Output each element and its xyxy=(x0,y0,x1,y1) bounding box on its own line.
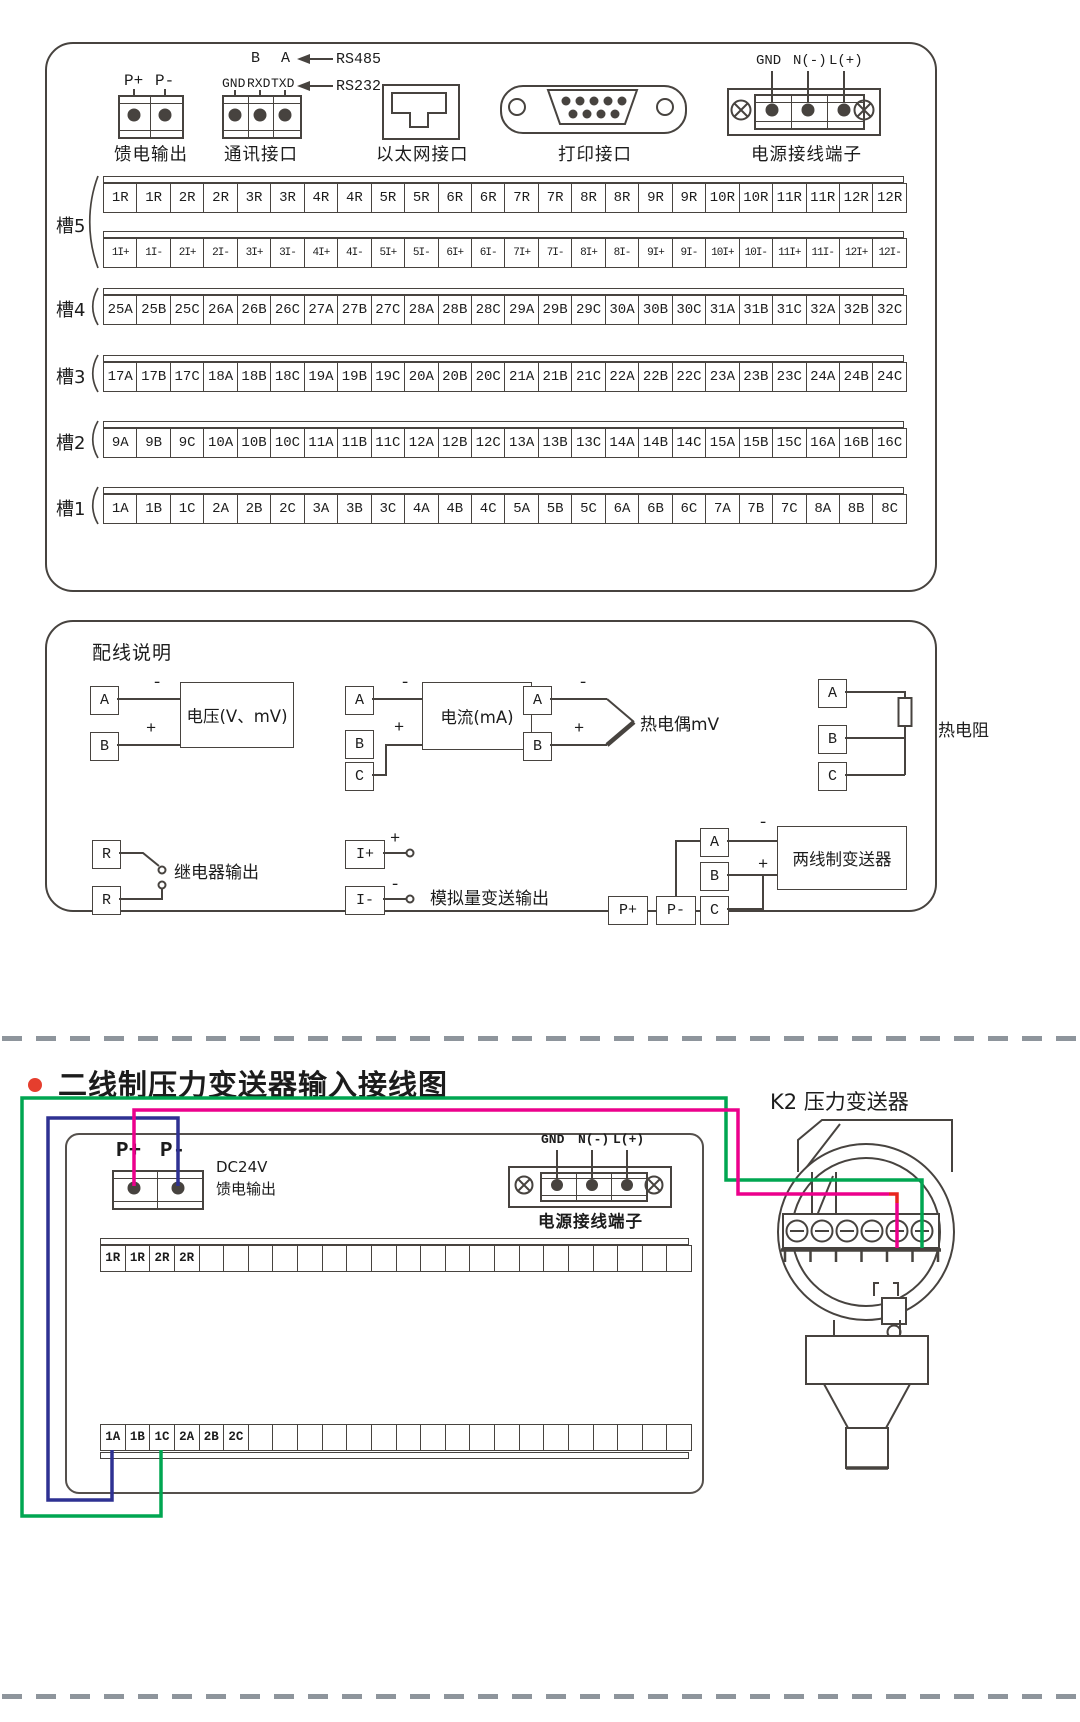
terminal-cell: 5B xyxy=(538,495,571,523)
terminal-cell: 2R xyxy=(174,1246,199,1271)
terminal-cell xyxy=(248,1425,273,1450)
printer-caption: 打印接口 xyxy=(558,141,632,166)
terminal-cell: 1B xyxy=(125,1425,150,1450)
terminal-cell: 31A xyxy=(705,296,738,324)
terminal-cell: 30C xyxy=(672,296,705,324)
slot5-row-r: 1R1R2R2R3R3R4R4R5R5R6R6R7R7R8R8R9R9R10R1… xyxy=(103,183,907,213)
terminal-cell: 21A xyxy=(504,363,537,391)
terminal-cell: 6A xyxy=(605,495,638,523)
terminal-cell xyxy=(371,1246,396,1271)
terminal-cell: 20A xyxy=(404,363,437,391)
terminal-cell: 2A xyxy=(203,495,236,523)
terminal-cell: 1B xyxy=(136,495,169,523)
terminal-cell: 3B xyxy=(337,495,370,523)
terminal-cell: 8C xyxy=(872,495,905,523)
terminal-cell: 14A xyxy=(605,429,638,457)
slot4-label: 槽4 xyxy=(56,296,85,322)
current-terminal-c: C xyxy=(345,762,374,791)
comm-terminal-block xyxy=(222,95,302,139)
terminal-cell: 11A xyxy=(304,429,337,457)
bottom-feed-pplus-label: P+ xyxy=(116,1140,141,1163)
terminal-cell: 20C xyxy=(471,363,504,391)
printer-port xyxy=(500,85,687,134)
terminal-cell: 1C xyxy=(149,1425,174,1450)
bottom-power-cells xyxy=(540,1172,648,1202)
terminal-cell: 7A xyxy=(705,495,738,523)
terminal-cell xyxy=(494,1425,519,1450)
analog-plus-sign: + xyxy=(390,830,400,849)
terminal-cell: 25B xyxy=(136,296,169,324)
terminal-cell: 11I+ xyxy=(772,239,805,267)
feed-terminal-block xyxy=(118,95,184,139)
block-divider xyxy=(611,1174,612,1200)
terminal-cell: 13C xyxy=(571,429,604,457)
wiring-diagram-page: P+ P- 馈电输出 B A GND RXD TXD RS485 RS232 通… xyxy=(0,0,1080,1722)
power-pin-l: L(+) xyxy=(829,53,863,69)
bottom-diagram-title: 二线制压力变送器输入接线图 xyxy=(58,1062,448,1104)
terminal-cell: 32B xyxy=(839,296,872,324)
voltage-terminal-a: A xyxy=(90,686,119,715)
bottom-feed-pminus-label: P- xyxy=(160,1140,185,1163)
bottom-power-gnd: GND xyxy=(541,1132,564,1147)
wire-red xyxy=(889,1194,897,1203)
terminal-cell xyxy=(445,1425,470,1450)
slot5-bar-i xyxy=(103,231,904,238)
terminal-cell: 10C xyxy=(270,429,303,457)
block-divider xyxy=(150,97,151,137)
terminal-cell: 11B xyxy=(337,429,370,457)
slot2-bar xyxy=(103,421,904,428)
terminal-cell: 6I- xyxy=(471,239,504,267)
terminal-cell: 15C xyxy=(772,429,805,457)
terminal-cell: 30B xyxy=(638,296,671,324)
terminal-cell: 18B xyxy=(237,363,270,391)
terminal-cell: 8I- xyxy=(605,239,638,267)
analog-terminal-iplus: I+ xyxy=(345,840,385,869)
block-band xyxy=(120,103,182,104)
terminal-cell: 16C xyxy=(872,429,905,457)
terminal-cell: 8A xyxy=(806,495,839,523)
terminal-cell: 19C xyxy=(371,363,404,391)
terminal-cell: 32A xyxy=(806,296,839,324)
terminal-cell xyxy=(494,1246,519,1271)
block-divider xyxy=(157,1172,158,1208)
terminal-cell: 3A xyxy=(304,495,337,523)
rs232-label: RS232 xyxy=(336,78,381,95)
slot2-row: 9A9B9C10A10B10C11A11B11C12A12B12C13A13B1… xyxy=(103,428,907,458)
terminal-cell xyxy=(420,1246,445,1271)
terminal-cell: 8R xyxy=(605,184,638,212)
bottom-strip-bottom-bar xyxy=(100,1452,689,1459)
terminal-cell: 13A xyxy=(504,429,537,457)
terminal-cell: 2R xyxy=(203,184,236,212)
terminal-cell: 8R xyxy=(571,184,604,212)
terminal-cell: 4I+ xyxy=(304,239,337,267)
terminal-cell: 19B xyxy=(337,363,370,391)
terminal-cell: 5I+ xyxy=(371,239,404,267)
terminal-cell: 31C xyxy=(772,296,805,324)
terminal-cell xyxy=(322,1425,347,1450)
terminal-cell xyxy=(617,1246,642,1271)
terminal-cell: 4R xyxy=(304,184,337,212)
transmitter-sign-p1: + xyxy=(817,1258,827,1276)
pressure-transmitter-drawing xyxy=(778,1120,954,1468)
thermocouple-minus-sign: - xyxy=(578,674,588,693)
terminal-cell: 3R xyxy=(270,184,303,212)
terminal-cell xyxy=(469,1246,494,1271)
terminal-cell: 5R xyxy=(371,184,404,212)
terminal-cell: 24C xyxy=(872,363,905,391)
thermocouple-terminal-b: B xyxy=(523,732,552,761)
comm-rs485-a-label: A xyxy=(281,50,290,67)
block-band xyxy=(114,1201,202,1202)
transmitter-sign-m2: - xyxy=(893,1258,903,1276)
terminal-cell xyxy=(543,1425,568,1450)
terminal-cell: 27B xyxy=(337,296,370,324)
terminal-cell: 26B xyxy=(237,296,270,324)
terminal-cell: 18C xyxy=(270,363,303,391)
block-divider xyxy=(576,1174,577,1200)
current-device-box: 电流(mA) xyxy=(422,682,532,750)
terminal-cell: 28C xyxy=(471,296,504,324)
terminal-cell: 10R xyxy=(739,184,772,212)
terminal-cell: 9C xyxy=(170,429,203,457)
terminal-cell: 2B xyxy=(237,495,270,523)
terminal-cell: 2R xyxy=(170,184,203,212)
slot4-row: 25A25B25C26A26B26C27A27B27C28A28B28C29A2… xyxy=(103,295,907,325)
block-divider xyxy=(248,97,249,137)
terminal-cell: 15B xyxy=(739,429,772,457)
terminal-cell: 10A xyxy=(203,429,236,457)
terminal-cell: 23B xyxy=(739,363,772,391)
terminal-cell: 7C xyxy=(772,495,805,523)
ethernet-port xyxy=(382,84,460,140)
terminal-cell: 2I- xyxy=(203,239,236,267)
terminal-cell xyxy=(223,1246,248,1271)
terminal-cell: 2C xyxy=(270,495,303,523)
bottom-feed-caption1: DC24V xyxy=(216,1158,267,1176)
terminal-cell: 28B xyxy=(438,296,471,324)
current-minus-sign: - xyxy=(400,674,410,693)
block-band xyxy=(542,1178,646,1179)
terminal-cell: 12B xyxy=(438,429,471,457)
twowire-feed-pplus: P+ xyxy=(608,896,648,925)
current-terminal-b: B xyxy=(345,730,374,759)
terminal-cell: 7B xyxy=(739,495,772,523)
terminal-cell: 11R xyxy=(806,184,839,212)
slot3-bar xyxy=(103,355,904,362)
comm-caption: 通讯接口 xyxy=(224,141,298,166)
ethernet-caption: 以太网接口 xyxy=(376,141,469,166)
terminal-cell: 2C xyxy=(223,1425,248,1450)
current-terminal-a: A xyxy=(345,686,374,715)
terminal-cell: 23C xyxy=(772,363,805,391)
terminal-cell: 21C xyxy=(571,363,604,391)
terminal-cell: 5I- xyxy=(404,239,437,267)
twowire-minus-sign: - xyxy=(758,814,768,833)
terminal-cell: 12R xyxy=(839,184,872,212)
terminal-cell xyxy=(543,1246,568,1271)
terminal-cell: 5A xyxy=(504,495,537,523)
terminal-cell: 3C xyxy=(371,495,404,523)
terminal-cell: 32C xyxy=(872,296,905,324)
terminal-cell xyxy=(346,1425,371,1450)
relay-terminal-r2: R xyxy=(92,886,121,915)
terminal-cell: 6R xyxy=(471,184,504,212)
block-band xyxy=(120,130,182,131)
terminal-cell: 22A xyxy=(605,363,638,391)
terminal-cell: 11C xyxy=(371,429,404,457)
block-divider xyxy=(273,97,274,137)
relay-label: 继电器输出 xyxy=(174,858,259,883)
terminal-cell xyxy=(593,1246,618,1271)
terminal-cell: 27C xyxy=(371,296,404,324)
terminal-cell xyxy=(272,1425,297,1450)
bracket-icon-right xyxy=(893,1283,898,1296)
voltage-minus-sign: - xyxy=(152,674,162,693)
terminal-cell: 4C xyxy=(471,495,504,523)
terminal-cell xyxy=(199,1246,224,1271)
terminal-cell: 2I+ xyxy=(170,239,203,267)
terminal-cell: 10B xyxy=(237,429,270,457)
terminal-cell: 3I+ xyxy=(237,239,270,267)
thermocouple-terminal-a: A xyxy=(523,686,552,715)
terminal-cell: 2A xyxy=(174,1425,199,1450)
terminal-cell: 10I- xyxy=(739,239,772,267)
terminal-cell: 10I+ xyxy=(705,239,738,267)
terminal-cell: 5R xyxy=(404,184,437,212)
terminal-cell: 14B xyxy=(638,429,671,457)
analog-minus-sign: - xyxy=(390,876,400,895)
slot5-row-i: 1I+1I-2I+2I-3I+3I-4I+4I-5I+5I-6I+6I-7I+7… xyxy=(103,238,907,268)
voltage-plus-sign: + xyxy=(146,720,156,739)
terminal-cell: 1R xyxy=(136,184,169,212)
terminal-cell xyxy=(617,1425,642,1450)
twowire-feed-pminus: P- xyxy=(656,896,696,925)
terminal-cell xyxy=(519,1425,544,1450)
terminal-cell xyxy=(568,1246,593,1271)
section-divider-bottom xyxy=(2,1694,1078,1699)
comm-pin-rxd: RXD xyxy=(247,76,270,91)
terminal-cell: 6B xyxy=(638,495,671,523)
terminal-cell xyxy=(445,1246,470,1271)
block-band xyxy=(756,102,863,103)
terminal-cell: 17C xyxy=(170,363,203,391)
analog-terminal-iminus: I- xyxy=(345,886,385,915)
terminal-cell: 6I+ xyxy=(438,239,471,267)
power-pin-n: N(-) xyxy=(793,53,827,69)
bottom-feed-block xyxy=(112,1170,204,1210)
terminal-cell: 9B xyxy=(136,429,169,457)
terminal-cell: 25A xyxy=(104,296,136,324)
block-divider xyxy=(827,96,828,128)
terminal-cell: 29A xyxy=(504,296,537,324)
terminal-cell: 8I+ xyxy=(571,239,604,267)
terminal-cell: 19A xyxy=(304,363,337,391)
terminal-cell xyxy=(593,1425,618,1450)
terminal-cell: 12I+ xyxy=(839,239,872,267)
terminal-cell: 7I+ xyxy=(504,239,537,267)
title-bullet xyxy=(28,1078,42,1092)
rtd-terminal-a: A xyxy=(818,679,847,708)
terminal-cell: 9I+ xyxy=(638,239,671,267)
voltage-terminal-b: B xyxy=(90,732,119,761)
block-band xyxy=(224,103,300,104)
block-band xyxy=(756,121,863,122)
bottom-feed-caption2: 馈电输出 xyxy=(216,1178,276,1199)
terminal-cell: 26C xyxy=(270,296,303,324)
terminal-cell: 1I- xyxy=(136,239,169,267)
terminal-cell xyxy=(642,1246,667,1271)
current-plus-sign: + xyxy=(394,719,404,738)
thermocouple-plus-sign: + xyxy=(574,720,584,739)
relay-terminal-r1: R xyxy=(92,840,121,869)
terminal-cell xyxy=(248,1246,273,1271)
terminal-cell: 20B xyxy=(438,363,471,391)
slot1-label: 槽1 xyxy=(56,495,85,521)
slot5-label: 槽5 xyxy=(56,212,85,238)
terminal-cell: 29B xyxy=(538,296,571,324)
rtd-terminal-b: B xyxy=(818,725,847,754)
bottom-power-n: N(-) xyxy=(578,1132,609,1147)
terminal-cell xyxy=(666,1246,691,1271)
terminal-cell: 3R xyxy=(237,184,270,212)
rs485-label: RS485 xyxy=(336,51,381,68)
terminal-cell: 7R xyxy=(504,184,537,212)
terminal-cell: 1I+ xyxy=(104,239,136,267)
voltage-device-box: 电压(V、mV) xyxy=(180,682,294,748)
terminal-cell: 1R xyxy=(125,1246,150,1271)
terminal-cell: 22B xyxy=(638,363,671,391)
transmitter-title: K2 压力变送器 xyxy=(770,1086,909,1116)
terminal-cell: 10R xyxy=(705,184,738,212)
slot2-label: 槽2 xyxy=(56,429,85,455)
terminal-cell: 1A xyxy=(101,1425,125,1450)
power-terminal-cells xyxy=(754,94,865,130)
slot5-bar-r xyxy=(103,176,904,183)
twowire-terminal-c: C xyxy=(700,896,729,925)
transmitter-sign-p2: + xyxy=(867,1258,877,1276)
terminal-cell: 14C xyxy=(672,429,705,457)
terminal-cell xyxy=(272,1246,297,1271)
terminal-cell: 16B xyxy=(839,429,872,457)
terminal-cell: 3I- xyxy=(270,239,303,267)
feed-pin-label-pplus: P+ xyxy=(124,72,143,90)
terminal-cell xyxy=(568,1425,593,1450)
terminal-cell: 24B xyxy=(839,363,872,391)
terminal-cell: 1C xyxy=(170,495,203,523)
transmitter-label-a: A xyxy=(816,1280,825,1297)
slot3-row: 17A17B17C18A18B18C19A19B19C20A20B20C21A2… xyxy=(103,362,907,392)
thermocouple-label: 热电偶mV xyxy=(640,710,719,735)
terminal-cell: 12A xyxy=(404,429,437,457)
terminal-cell: 13B xyxy=(538,429,571,457)
terminal-cell xyxy=(297,1246,322,1271)
comm-rs485-b-label: B xyxy=(251,50,260,67)
terminal-cell: 6R xyxy=(438,184,471,212)
feed-pin-label-pminus: P- xyxy=(155,72,174,90)
twowire-device-box: 两线制变送器 xyxy=(777,826,907,890)
terminal-cell xyxy=(346,1246,371,1271)
terminal-cell: 30A xyxy=(605,296,638,324)
terminal-cell: 1A xyxy=(104,495,136,523)
terminal-cell: 9R xyxy=(672,184,705,212)
terminal-cell: 23A xyxy=(705,363,738,391)
block-band xyxy=(542,1195,646,1196)
block-band xyxy=(114,1178,202,1179)
terminal-cell: 7I- xyxy=(538,239,571,267)
transmitter-sign-m1: - xyxy=(843,1258,853,1276)
terminal-cell: 31B xyxy=(739,296,772,324)
power-pin-gnd: GND xyxy=(756,53,781,69)
bottom-strip-top-bar xyxy=(100,1238,689,1245)
bottom-strip-top: 1R1R2R2R xyxy=(100,1245,692,1272)
terminal-cell: 24A xyxy=(806,363,839,391)
terminal-cell: 12C xyxy=(471,429,504,457)
terminal-cell: 15A xyxy=(705,429,738,457)
terminal-cell: 25C xyxy=(170,296,203,324)
terminal-cell xyxy=(396,1425,421,1450)
analog-output-label: 模拟量变送输出 xyxy=(430,884,549,909)
terminal-cell xyxy=(469,1425,494,1450)
terminal-cell: 11R xyxy=(772,184,805,212)
bottom-strip-bottom: 1A1B1C2A2B2C xyxy=(100,1424,692,1451)
terminal-cell: 2R xyxy=(149,1246,174,1271)
wiring-guide-title: 配线说明 xyxy=(92,638,172,665)
terminal-cell: 12R xyxy=(872,184,905,212)
terminal-cell: 26A xyxy=(203,296,236,324)
section-divider-top xyxy=(2,1036,1078,1041)
terminal-cell: 4R xyxy=(337,184,370,212)
terminal-cell: 4I- xyxy=(337,239,370,267)
terminal-cell: 21B xyxy=(538,363,571,391)
terminal-cell: 6C xyxy=(672,495,705,523)
terminal-cell: 17A xyxy=(104,363,136,391)
terminal-cell: 27A xyxy=(304,296,337,324)
terminal-cell: 18A xyxy=(203,363,236,391)
terminal-cell: 2B xyxy=(199,1425,224,1450)
slot1-row: 1A1B1C2A2B2C3A3B3C4A4B4C5A5B5C6A6B6C7A7B… xyxy=(103,494,907,524)
twowire-terminal-a: A xyxy=(700,828,729,857)
transmitter-screws xyxy=(787,1221,933,1242)
terminal-cell: 7R xyxy=(538,184,571,212)
rtd-label: 热电阻 xyxy=(938,716,989,741)
twowire-plus-sign: + xyxy=(758,856,768,875)
terminal-cell: 11I- xyxy=(806,239,839,267)
slot3-label: 槽3 xyxy=(56,363,85,389)
terminal-cell xyxy=(666,1425,691,1450)
terminal-cell: 4A xyxy=(404,495,437,523)
terminal-cell xyxy=(519,1246,544,1271)
terminal-cell: 1R xyxy=(101,1246,125,1271)
slot1-bar xyxy=(103,487,904,494)
terminal-cell: 16A xyxy=(806,429,839,457)
power-caption: 电源接线端子 xyxy=(751,141,862,166)
terminal-cell xyxy=(297,1425,322,1450)
terminal-cell: 9I- xyxy=(672,239,705,267)
bottom-power-l: L(+) xyxy=(613,1132,644,1147)
terminal-cell xyxy=(642,1425,667,1450)
terminal-cell: 12I- xyxy=(872,239,905,267)
terminal-cell: 1R xyxy=(104,184,136,212)
terminal-cell: 17B xyxy=(136,363,169,391)
terminal-cell: 29C xyxy=(571,296,604,324)
terminal-cell: 9R xyxy=(638,184,671,212)
terminal-cell xyxy=(396,1246,421,1271)
terminal-cell: 4B xyxy=(438,495,471,523)
terminal-cell xyxy=(371,1425,396,1450)
comm-pin-gnd: GND xyxy=(222,76,245,91)
